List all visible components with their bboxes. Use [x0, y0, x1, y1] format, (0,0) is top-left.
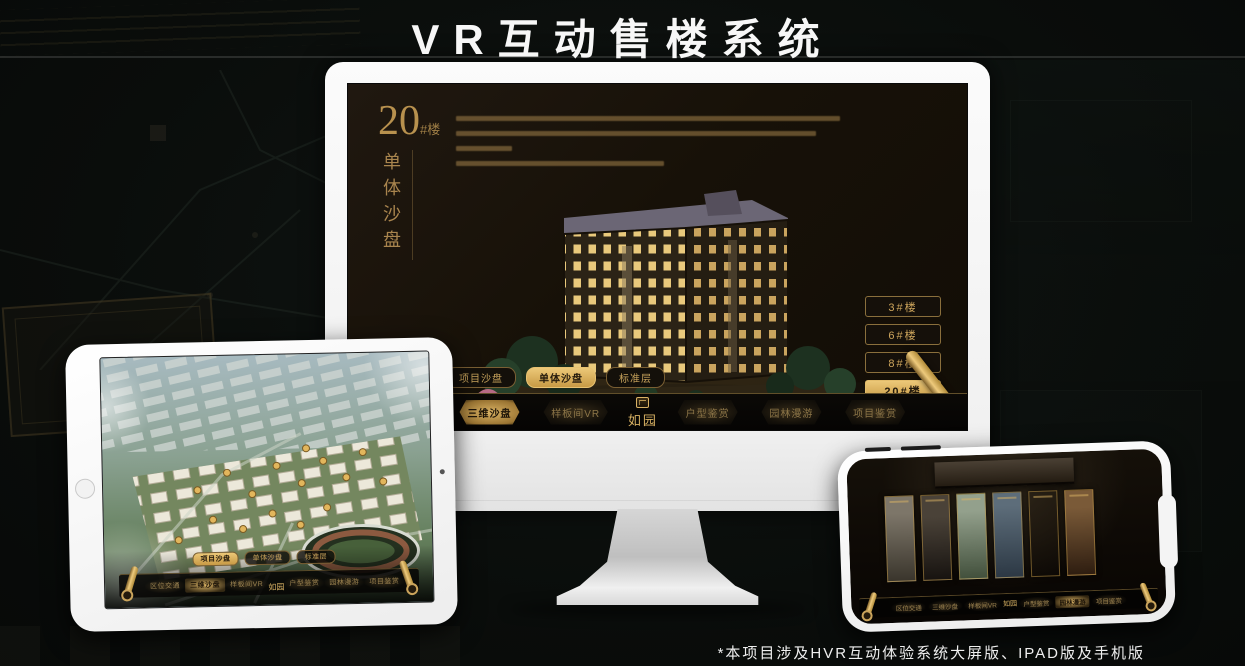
- scene-card-garden[interactable]: [956, 493, 988, 580]
- tab-project-sandtable[interactable]: 项目沙盘: [446, 367, 516, 388]
- tablet-mockup: 项目沙盘 单体沙盘 标准层 区位交通 三维沙盘 样板间VR 如园 户型鉴赏 园林…: [65, 337, 458, 632]
- nav-garden-roam[interactable]: 园林漫游: [757, 400, 825, 425]
- building-button-6[interactable]: 6#楼: [865, 324, 941, 345]
- nav-location-traffic[interactable]: 区位交通: [145, 578, 185, 593]
- intro-text-line: [456, 146, 512, 151]
- nav-model-room-vr[interactable]: 样板间VR: [964, 598, 1001, 611]
- tab-project-sandtable[interactable]: 项目沙盘: [192, 551, 238, 566]
- background-map-collage: [0, 70, 340, 370]
- scene-card-gate[interactable]: [1028, 490, 1060, 577]
- home-button[interactable]: [75, 478, 95, 498]
- phone-side-button: [865, 447, 891, 452]
- brand-logo-text: 如园: [268, 583, 284, 592]
- nav-floorplan-gallery[interactable]: 户型鉴赏: [284, 575, 324, 590]
- brand-logo[interactable]: 如园: [1003, 598, 1017, 608]
- scene-card-building[interactable]: [992, 491, 1024, 578]
- nav-3d-sandtable[interactable]: 三维沙盘: [928, 599, 962, 612]
- nav-floorplan-gallery[interactable]: 户型鉴赏: [1019, 596, 1053, 609]
- seal-logo-icon: [272, 574, 280, 581]
- scene-card-lounge[interactable]: [920, 494, 952, 581]
- tablet-screen: 项目沙盘 单体沙盘 标准层 区位交通 三维沙盘 样板间VR 如园 户型鉴赏 园林…: [99, 350, 434, 609]
- building-button-3[interactable]: 3#楼: [865, 296, 941, 317]
- nav-location-traffic[interactable]: 区位交通: [891, 600, 925, 613]
- nav-floorplan-gallery[interactable]: 户型鉴赏: [674, 400, 742, 425]
- nav-garden-roam[interactable]: 园林漫游: [1055, 595, 1089, 608]
- nav-project-gallery[interactable]: 项目鉴赏: [1092, 593, 1126, 606]
- entrance-render: [935, 458, 1074, 489]
- brand-logo-text: 如园: [628, 414, 658, 427]
- building-title-block: 20#楼 单体沙盘: [378, 100, 440, 272]
- nav-3d-sandtable[interactable]: 三维沙盘: [456, 400, 524, 425]
- page-background: VR互动售楼系统 20#楼 单体沙盘: [0, 0, 1245, 666]
- tab-standard-floor[interactable]: 标准层: [296, 549, 335, 564]
- brand-logo-text: 如园: [1003, 599, 1017, 607]
- tablet-sub-tabs: 项目沙盘 单体沙盘 标准层: [192, 549, 335, 566]
- scene-card-study[interactable]: [1064, 489, 1096, 576]
- seal-logo-icon: [636, 397, 649, 408]
- nav-project-gallery[interactable]: 项目鉴赏: [841, 400, 909, 425]
- nav-model-room-vr[interactable]: 样板间VR: [539, 400, 612, 425]
- intro-text-line: [456, 131, 816, 136]
- tab-standard-floor[interactable]: 标准层: [606, 367, 665, 388]
- tab-single-sandtable[interactable]: 单体沙盘: [526, 367, 596, 388]
- phone-notch: [1158, 494, 1179, 569]
- page-title: VR互动售楼系统: [0, 6, 1245, 67]
- background-strip-collage: [0, 626, 480, 666]
- nav-model-room-vr[interactable]: 样板间VR: [225, 576, 269, 591]
- building-number-suffix: #楼: [420, 122, 440, 137]
- brand-logo[interactable]: 如园: [628, 397, 658, 427]
- camera-dot: [440, 469, 445, 474]
- sandtable-sub-tabs: 项目沙盘 单体沙盘 标准层: [446, 367, 665, 388]
- scene-card-interior[interactable]: [884, 495, 916, 582]
- phone-side-button: [901, 445, 941, 450]
- brand-logo[interactable]: 如园: [268, 574, 284, 593]
- building-number: 20: [378, 100, 420, 142]
- nav-project-gallery[interactable]: 项目鉴赏: [364, 574, 404, 589]
- phone-navbar: 区位交通 三维沙盘 样板间VR 如园 户型鉴赏 园林漫游 项目鉴赏: [859, 588, 1159, 618]
- monitor-stand: [553, 509, 763, 605]
- nav-garden-roam[interactable]: 园林漫游: [324, 574, 364, 589]
- building-subtitle: 单体沙盘: [378, 152, 404, 272]
- footnote: *本项目涉及HVR互动体验系统大屏版、IPAD版及手机版: [718, 642, 1145, 663]
- nav-3d-sandtable[interactable]: 三维沙盘: [185, 577, 225, 592]
- phone-mockup: 区位交通 三维沙盘 样板间VR 如园 户型鉴赏 园林漫游 项目鉴赏: [837, 440, 1176, 633]
- subtitle-rule: [412, 150, 413, 260]
- scene-gallery: [884, 489, 1096, 582]
- tab-single-sandtable[interactable]: 单体沙盘: [244, 550, 290, 565]
- building-3d-render[interactable]: [436, 156, 896, 431]
- phone-screen: 区位交通 三维沙盘 样板间VR 如园 户型鉴赏 园林漫游 项目鉴赏: [846, 449, 1167, 625]
- intro-text-line: [456, 116, 840, 121]
